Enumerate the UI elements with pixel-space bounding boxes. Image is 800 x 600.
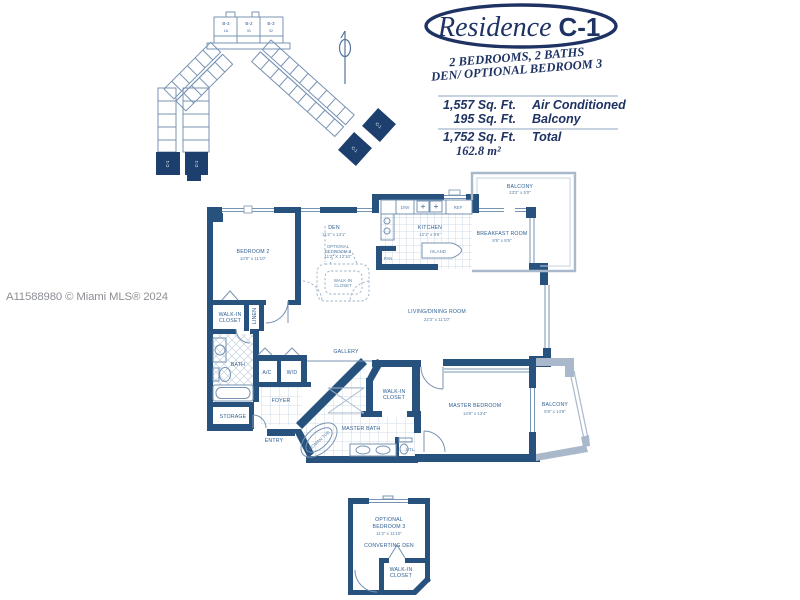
svg-text:12'1" x 9'6": 12'1" x 9'6" — [419, 232, 441, 237]
svg-text:CONVERTING DEN: CONVERTING DEN — [364, 543, 414, 549]
svg-text:11'2" x 11'10": 11'2" x 11'10" — [376, 531, 402, 536]
svg-text:B-3: B-3 — [222, 21, 230, 26]
svg-text:B-3: B-3 — [267, 21, 275, 26]
svg-text:162.8 m²: 162.8 m² — [456, 144, 501, 158]
svg-text:Balcony: Balcony — [532, 112, 582, 126]
svg-text:ISLAND: ISLAND — [430, 249, 446, 254]
svg-text:8'5" x 8'5": 8'5" x 8'5" — [492, 238, 512, 243]
svg-text:C-1: C-1 — [194, 160, 199, 167]
svg-text:GALLERY: GALLERY — [333, 349, 359, 355]
svg-text:OPTIONAL: OPTIONAL — [375, 517, 403, 523]
svg-text:DEN: DEN — [328, 225, 340, 231]
svg-text:D/W: D/W — [401, 205, 410, 210]
svg-text:Total: Total — [532, 130, 562, 144]
svg-text:BEDROOM 2: BEDROOM 2 — [237, 249, 270, 255]
svg-text:KITCHEN: KITCHEN — [418, 225, 442, 231]
svg-text:01: 01 — [247, 29, 251, 33]
svg-text:PAN: PAN — [384, 256, 393, 261]
svg-text:LINEN: LINEN — [252, 308, 258, 324]
svg-text:W/D: W/D — [287, 370, 298, 376]
svg-text:BATH: BATH — [231, 362, 245, 368]
svg-text:11'2" x 14'1": 11'2" x 14'1" — [322, 232, 346, 237]
svg-text:1,557 Sq. Ft.: 1,557 Sq. Ft. — [443, 98, 516, 112]
svg-text:23'2" x 5'0": 23'2" x 5'0" — [509, 190, 531, 195]
svg-text:A/C: A/C — [262, 370, 271, 376]
svg-text:CLOSET: CLOSET — [219, 318, 242, 324]
svg-text:14'8" x 13'4": 14'8" x 13'4" — [463, 411, 488, 416]
svg-text:CLOSET: CLOSET — [383, 395, 406, 401]
svg-text:A11588980 © Miami MLS® 2024: A11588980 © Miami MLS® 2024 — [6, 291, 168, 303]
svg-text:10'9" x 11'10": 10'9" x 11'10" — [240, 256, 267, 261]
svg-text:BEDROOM 3: BEDROOM 3 — [373, 524, 406, 530]
svg-text:Air Conditioned: Air Conditioned — [531, 98, 626, 112]
svg-text:Residence C-1: Residence C-1 — [437, 12, 600, 43]
svg-text:CLOSET: CLOSET — [334, 283, 352, 288]
svg-text:FOYER: FOYER — [272, 398, 291, 404]
svg-text:1A: 1A — [224, 29, 229, 33]
svg-text:ENTRY: ENTRY — [265, 438, 284, 444]
svg-text:22'3" x 11'10": 22'3" x 11'10" — [424, 317, 451, 322]
svg-text:LIVING/DINING ROOM: LIVING/DINING ROOM — [408, 309, 466, 315]
svg-text:CLOSET: CLOSET — [390, 573, 413, 579]
svg-text:BREAKFAST ROOM: BREAKFAST ROOM — [477, 231, 528, 237]
svg-text:C-1: C-1 — [165, 160, 170, 167]
svg-text:MASTER BEDROOM: MASTER BEDROOM — [449, 403, 502, 409]
svg-text:MASTER BATH: MASTER BATH — [342, 426, 381, 432]
svg-text:02: 02 — [269, 29, 273, 33]
svg-text:195 Sq. Ft.: 195 Sq. Ft. — [453, 112, 516, 126]
svg-text:9'8" x 14'8": 9'8" x 14'8" — [544, 409, 566, 414]
svg-text:1,752 Sq. Ft.: 1,752 Sq. Ft. — [443, 130, 516, 144]
svg-text:B-2: B-2 — [245, 21, 253, 26]
svg-text:BALCONY: BALCONY — [542, 402, 569, 408]
svg-text:11'2" X 12'10": 11'2" X 12'10" — [325, 254, 352, 259]
svg-text:REF: REF — [454, 205, 463, 210]
svg-text:STORAGE: STORAGE — [220, 414, 247, 420]
svg-text:UTL: UTL — [406, 447, 415, 452]
